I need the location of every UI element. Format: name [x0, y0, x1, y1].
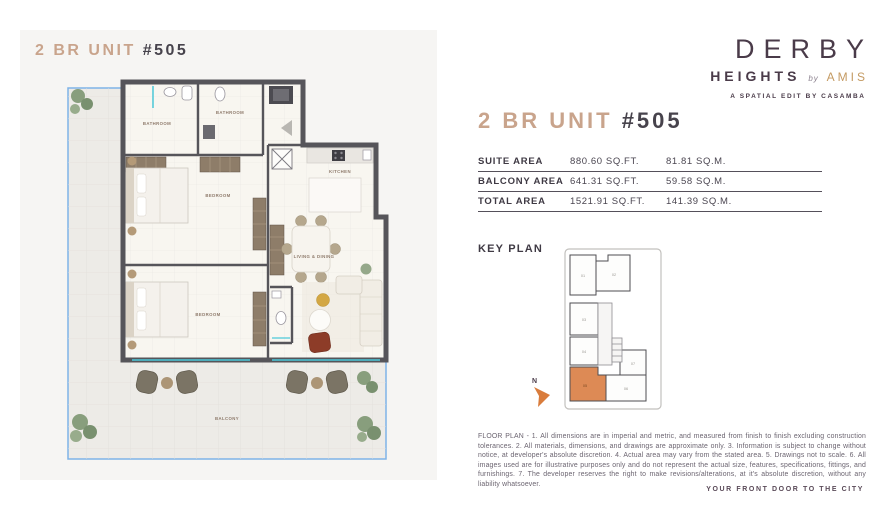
area-row-label: SUITE AREA	[478, 156, 570, 167]
floor-plan-panel: 2 BR UNIT #505	[20, 30, 437, 480]
key-plan-heading: KEY PLAN	[478, 243, 543, 255]
washer-icon	[269, 86, 293, 104]
area-row-label: TOTAL AREA	[478, 196, 570, 207]
bedroom1-label: BEDROOM	[205, 193, 230, 198]
brand-sub-text: HEIGHTS	[710, 68, 800, 84]
brand-name: DERBY	[710, 34, 873, 65]
unit-title-prefix: 2 BR UNIT	[478, 108, 613, 133]
svg-text:01: 01	[581, 274, 585, 278]
key-plan: 01 02 03 04 05 06 07	[558, 246, 668, 414]
svg-text:04: 04	[582, 350, 586, 354]
svg-text:07: 07	[631, 362, 635, 366]
coffee-table-gold-icon	[317, 294, 330, 307]
brand-by-text: by	[808, 74, 818, 83]
table-row: TOTAL AREA 1521.91 SQ.FT. 141.39 SQ.M.	[478, 192, 822, 212]
bathroom2-label: BATHROOM	[216, 110, 244, 115]
unit-title-number: #505	[622, 108, 683, 133]
brand-partner-text: AMIS	[827, 70, 868, 84]
area-row-label: BALCONY AREA	[478, 176, 570, 187]
area-row-imperial: 880.60 SQ.FT.	[570, 156, 666, 167]
north-indicator: N	[530, 378, 564, 414]
area-row-imperial: 1521.91 SQ.FT.	[570, 196, 666, 207]
armchair-icon	[308, 332, 331, 354]
area-row-metric: 81.81 SQ.M.	[666, 156, 822, 167]
page: 2 BR UNIT #505	[0, 0, 880, 510]
area-table: SUITE AREA 880.60 SQ.FT. 81.81 SQ.M. BAL…	[478, 152, 822, 212]
bedroom2-label: BEDROOM	[195, 312, 220, 317]
area-row-imperial: 641.31 SQ.FT.	[570, 176, 666, 187]
plant-icon	[361, 264, 372, 275]
north-arrow-icon	[530, 385, 554, 409]
svg-text:05: 05	[583, 384, 587, 388]
footer-slogan: YOUR FRONT DOOR TO THE CITY	[706, 486, 864, 493]
bathroom1-label: BATHROOM	[143, 121, 171, 126]
floor-plan-drawing: BATHROOM BATHROOM BEDROOM BEDROOM KITCHE…	[20, 30, 437, 480]
svg-text:06: 06	[624, 387, 628, 391]
living-dining-label: LIVING & DINING	[294, 254, 335, 259]
balcony-label: BALCONY	[215, 416, 239, 421]
brand-sub: HEIGHTS by AMIS	[710, 68, 868, 84]
disclaimer-text: FLOOR PLAN - 1. All dimensions are in im…	[478, 432, 866, 489]
area-row-metric: 141.39 SQ.M.	[666, 196, 822, 207]
shaft-icon	[272, 149, 292, 169]
svg-text:02: 02	[612, 273, 616, 277]
unit-title: 2 BR UNIT #505	[478, 108, 683, 134]
table-row: SUITE AREA 880.60 SQ.FT. 81.81 SQ.M.	[478, 152, 822, 172]
coffee-table-icon	[310, 310, 331, 331]
brand-tagline: A SPATIAL EDIT BY CASAMBA	[710, 93, 865, 100]
area-row-metric: 59.58 SQ.M.	[666, 176, 822, 187]
brand-logo: DERBY HEIGHTS by AMIS A SPATIAL EDIT BY …	[710, 34, 864, 100]
table-row: BALCONY AREA 641.31 SQ.FT. 59.58 SQ.M.	[478, 172, 822, 192]
kitchen-label: KITCHEN	[329, 169, 351, 174]
north-label: N	[532, 378, 564, 385]
svg-text:03: 03	[582, 318, 586, 322]
